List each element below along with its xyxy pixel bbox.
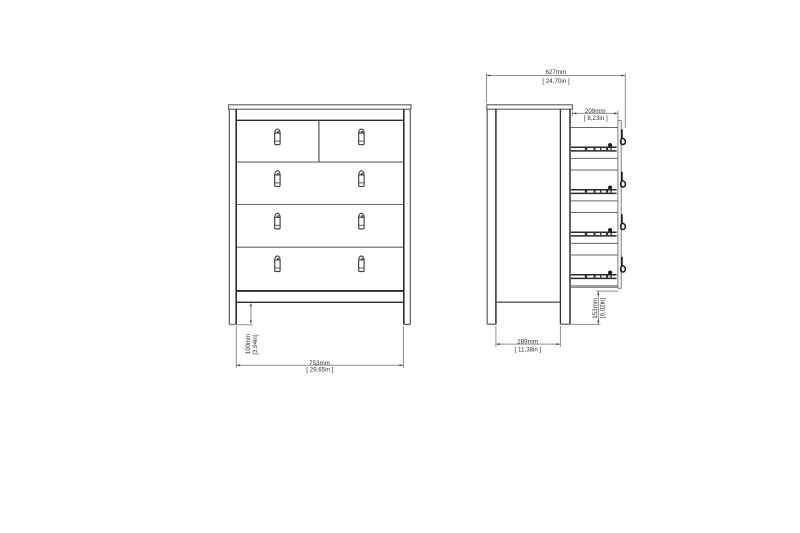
svg-text:209mm: 209mm: [585, 108, 606, 115]
svg-text:[ 29,65in ]: [ 29,65in ]: [306, 367, 333, 374]
svg-text:[ 8,23in ]: [ 8,23in ]: [584, 115, 608, 122]
svg-text:[ 24,70in ]: [ 24,70in ]: [542, 78, 569, 85]
svg-text:627mm: 627mm: [545, 69, 566, 76]
svg-text:153mm: 153mm: [592, 298, 599, 319]
svg-text:[6,02in]: [6,02in]: [599, 298, 606, 319]
svg-text:289mm: 289mm: [517, 338, 538, 345]
svg-text:[3,94in]: [3,94in]: [252, 334, 259, 355]
svg-text:100mm: 100mm: [245, 334, 252, 355]
svg-text:[ 11,38in ]: [ 11,38in ]: [515, 347, 542, 354]
